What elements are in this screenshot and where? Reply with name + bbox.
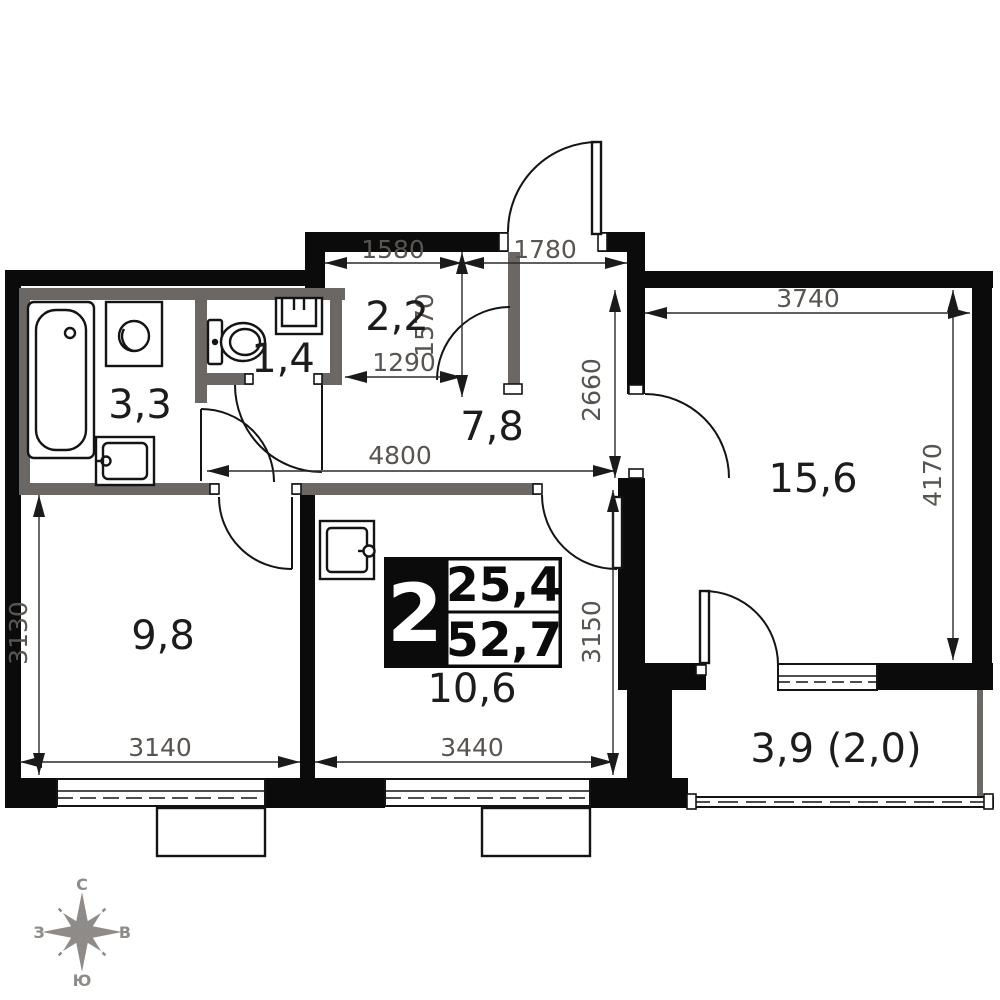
room-label-living: 15,6 xyxy=(768,456,857,502)
dim-3740: 3740 xyxy=(776,284,840,313)
balcony-door-window xyxy=(778,664,877,690)
compass-west: З xyxy=(33,923,44,942)
room-label-hall: 7,8 xyxy=(460,404,524,450)
room-label-balcony: 3,9 (2,0) xyxy=(750,726,921,772)
bedroom-window xyxy=(57,779,265,806)
badge-total-area: 52,7 xyxy=(446,613,562,668)
living-room-door xyxy=(629,385,729,478)
balcony-door xyxy=(696,591,778,675)
balcony-glazing xyxy=(687,794,993,809)
compass-north: С xyxy=(76,875,88,894)
badge-living-area: 25,4 xyxy=(446,558,562,613)
room-label-bedroom: 9,8 xyxy=(131,613,195,659)
room-label-bath: 3,3 xyxy=(108,382,172,428)
compass-east: В xyxy=(119,923,131,942)
washing-machine xyxy=(106,302,162,366)
dim-3150: 3150 xyxy=(577,600,606,664)
wc-door xyxy=(235,374,322,472)
dim-1780: 1780 xyxy=(513,235,577,264)
dim-3440: 3440 xyxy=(440,733,504,762)
compass-south: Ю xyxy=(73,971,92,990)
dim-3140: 3140 xyxy=(128,733,192,762)
floor-plan: 1580 1780 1570 1290 2660 3740 4170 4800 … xyxy=(0,0,1000,1000)
wc-sink xyxy=(276,298,322,334)
compass-rose: С Ю З В xyxy=(27,875,137,990)
room-label-closet: 2,2 xyxy=(365,294,429,340)
dim-4170: 4170 xyxy=(918,443,947,507)
kitchen-door xyxy=(533,484,622,569)
dim-4800: 4800 xyxy=(368,441,432,470)
window-baskets xyxy=(157,808,590,856)
room-label-kitchen: 10,6 xyxy=(427,666,516,712)
bedroom-door xyxy=(210,484,301,569)
dim-2660: 2660 xyxy=(577,358,606,422)
dim-1580: 1580 xyxy=(361,235,425,264)
bathtub xyxy=(28,302,94,458)
interior-partitions xyxy=(19,252,983,800)
floorplan-page: 1580 1780 1570 1290 2660 3740 4170 4800 … xyxy=(0,0,1000,1000)
kitchen-sink xyxy=(320,521,375,579)
bathroom-sink xyxy=(96,437,154,485)
badge-room-count: 2 xyxy=(387,567,443,660)
apartment-badge: 2 25,4 52,7 xyxy=(384,557,562,668)
room-label-wc: 1,4 xyxy=(251,336,315,382)
kitchen-window xyxy=(385,779,590,806)
dim-3130: 3130 xyxy=(4,601,33,665)
dim-1290: 1290 xyxy=(372,348,436,377)
